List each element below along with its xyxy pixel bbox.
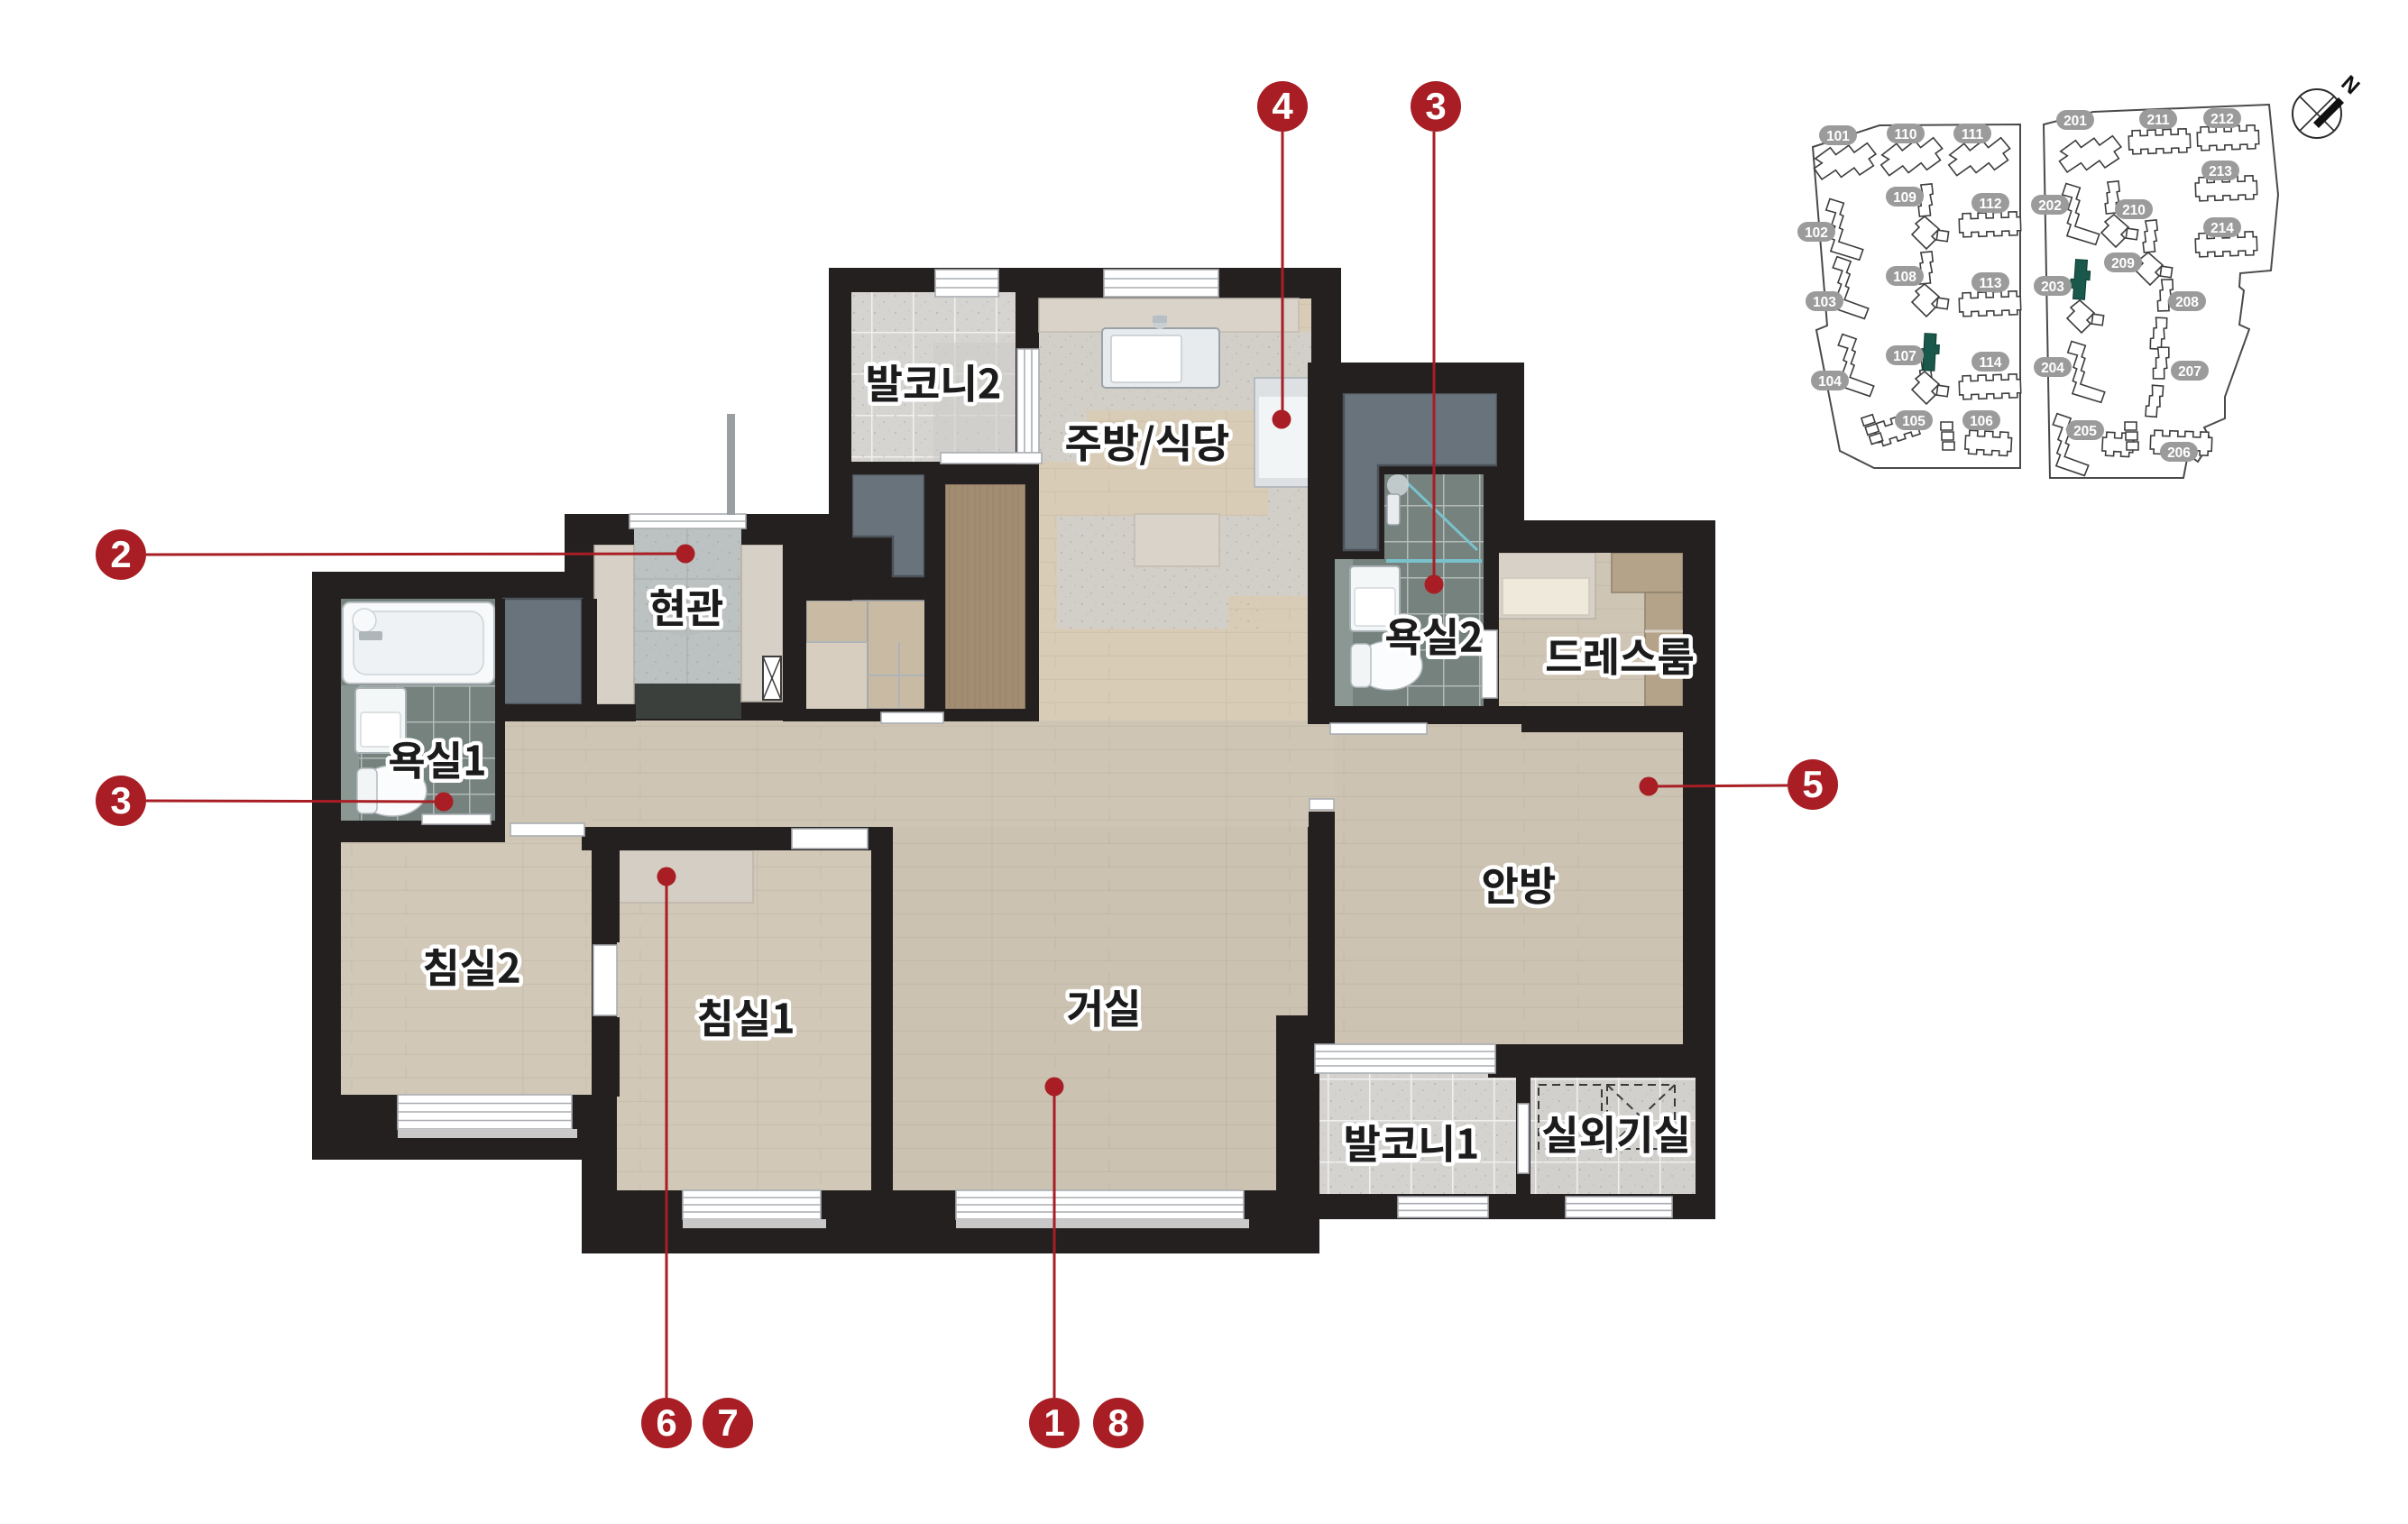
svg-text:112: 112 bbox=[1979, 197, 2001, 212]
svg-text:213: 213 bbox=[2209, 164, 2232, 179]
svg-text:203: 203 bbox=[2041, 280, 2064, 295]
svg-text:3: 3 bbox=[110, 779, 131, 822]
svg-text:204: 204 bbox=[2041, 361, 2064, 376]
svg-text:111: 111 bbox=[1962, 127, 1984, 142]
svg-text:105: 105 bbox=[1902, 414, 1925, 429]
svg-text:202: 202 bbox=[2038, 198, 2062, 214]
svg-text:7: 7 bbox=[717, 1401, 738, 1444]
svg-text:114: 114 bbox=[1979, 355, 2001, 371]
svg-text:109: 109 bbox=[1893, 190, 1916, 206]
svg-text:3: 3 bbox=[1425, 85, 1446, 127]
svg-text:205: 205 bbox=[2073, 424, 2097, 439]
svg-text:102: 102 bbox=[1805, 225, 1828, 241]
svg-text:101: 101 bbox=[1826, 129, 1850, 144]
svg-text:103: 103 bbox=[1813, 295, 1836, 310]
svg-text:110: 110 bbox=[1894, 127, 1916, 142]
svg-text:108: 108 bbox=[1893, 270, 1916, 285]
svg-text:2: 2 bbox=[110, 533, 131, 575]
svg-text:212: 212 bbox=[2210, 112, 2234, 127]
svg-text:104: 104 bbox=[1818, 374, 1842, 390]
svg-text:206: 206 bbox=[2167, 445, 2191, 461]
svg-text:113: 113 bbox=[1979, 276, 2001, 291]
svg-text:8: 8 bbox=[1107, 1401, 1128, 1444]
svg-text:4: 4 bbox=[1272, 85, 1293, 127]
svg-text:1: 1 bbox=[1043, 1401, 1064, 1444]
svg-text:207: 207 bbox=[2178, 364, 2201, 380]
svg-text:208: 208 bbox=[2175, 295, 2199, 310]
svg-text:214: 214 bbox=[2210, 221, 2234, 236]
svg-text:209: 209 bbox=[2111, 256, 2135, 271]
svg-text:211: 211 bbox=[2146, 113, 2169, 128]
svg-text:6: 6 bbox=[656, 1401, 676, 1444]
svg-text:210: 210 bbox=[2122, 203, 2146, 218]
svg-text:106: 106 bbox=[1970, 414, 1993, 429]
svg-text:107: 107 bbox=[1893, 349, 1916, 364]
svg-text:201: 201 bbox=[2063, 114, 2087, 129]
svg-text:5: 5 bbox=[1802, 763, 1823, 805]
